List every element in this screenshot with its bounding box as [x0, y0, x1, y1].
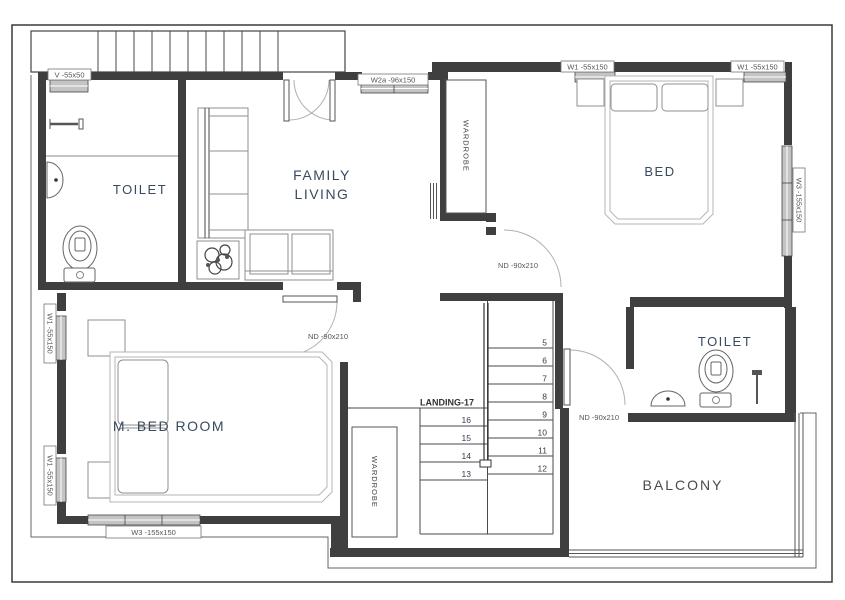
stair-stringer-cap: [480, 460, 491, 467]
wardrobe-top-label: WARDROBE: [462, 120, 471, 172]
stair-step-7: 7: [542, 374, 547, 384]
wardrobe-bottom-label: WARDROBE: [370, 456, 379, 508]
room-label-family: FAMILY: [293, 167, 351, 183]
stair-step-14: 14: [462, 451, 472, 461]
stair-step-9: 9: [542, 410, 547, 420]
toilet2-fixtures: [651, 350, 762, 407]
window-w1-side-upper-label: W1 -55x150: [46, 313, 55, 353]
window-w1-side-upper: W1 -55x150: [44, 304, 66, 363]
stair-step-12: 12: [538, 464, 548, 474]
floor-plan-page: V -55x50 W2a -96x150 W1 -55x150 W1 -55x1…: [0, 0, 845, 600]
plant-icon: [197, 241, 239, 279]
landing-label: LANDING-17: [420, 398, 474, 408]
wc-icon: [63, 226, 97, 282]
toilet-door: ND -90x210: [564, 349, 625, 422]
room-label-toilet1: TOILET: [113, 182, 167, 197]
window-w1-top-right-label: W1 -55x150: [737, 63, 777, 72]
room-label-living: LIVING: [295, 186, 350, 202]
bedroom-door: ND -90x210: [498, 230, 561, 287]
window-w1-side-lower-label: W1 -55x150: [46, 455, 55, 495]
master-bedroom-door-label: ND -90x210: [308, 332, 348, 341]
window-v: V -55x50: [48, 69, 91, 92]
stair-step-6: 6: [542, 356, 547, 366]
master-bed-furniture: [88, 320, 332, 502]
window-w3-right-label: W3 -155x150: [795, 178, 804, 223]
toilet1-fixtures: [46, 119, 178, 282]
stair-step-11: 11: [538, 446, 547, 456]
stair-step-15: 15: [462, 433, 472, 443]
room-label-bed: BED: [644, 164, 675, 179]
window-w2a: W2a -96x150: [358, 74, 428, 93]
window-w1-side-lower: W1 -55x150: [44, 446, 66, 505]
shower2-icon: [752, 370, 762, 404]
toilet-door-label: ND -90x210: [579, 413, 619, 422]
wall-vent-icon: [431, 183, 437, 219]
room-label-toilet2: TOILET: [698, 334, 752, 349]
window-v-label: V -55x50: [54, 71, 84, 80]
stair-step-5: 5: [542, 338, 547, 348]
master-bedroom-door: ND -90x210: [283, 296, 348, 356]
window-w3-bottom-label: W3 -155x150: [131, 528, 176, 537]
sink2-icon: [651, 391, 685, 406]
sink-icon: [47, 162, 63, 198]
stair-step-8: 8: [542, 392, 547, 402]
room-label-m-bed-room: M. BED ROOM: [113, 418, 225, 434]
shower-rod-icon: [50, 119, 83, 129]
floor-plan-canvas: V -55x50 W2a -96x150 W1 -55x150 W1 -55x1…: [0, 0, 845, 600]
bed-furniture: [577, 76, 743, 224]
stair-step-10: 10: [538, 428, 548, 438]
family-living-double-door: [284, 80, 335, 121]
wardrobe-bottom: WARDROBE: [352, 427, 397, 537]
room-label-balcony: BALCONY: [643, 477, 724, 493]
bedroom-door-label: ND -90x210: [498, 261, 538, 270]
window-w1-top-left-label: W1 -55x150: [567, 63, 607, 72]
wc2-icon: [699, 350, 733, 407]
window-w2a-label: W2a -96x150: [371, 76, 416, 85]
stair-step-16: 16: [462, 415, 472, 425]
stair-step-13: 13: [462, 469, 472, 479]
wardrobe-top: WARDROBE: [446, 80, 486, 213]
stair-stringer: [484, 303, 488, 461]
window-w3-bottom: W3 -155x150: [88, 515, 201, 538]
window-w3-right: W3 -155x150: [782, 146, 805, 256]
stair-hatch-strip: [31, 31, 345, 72]
